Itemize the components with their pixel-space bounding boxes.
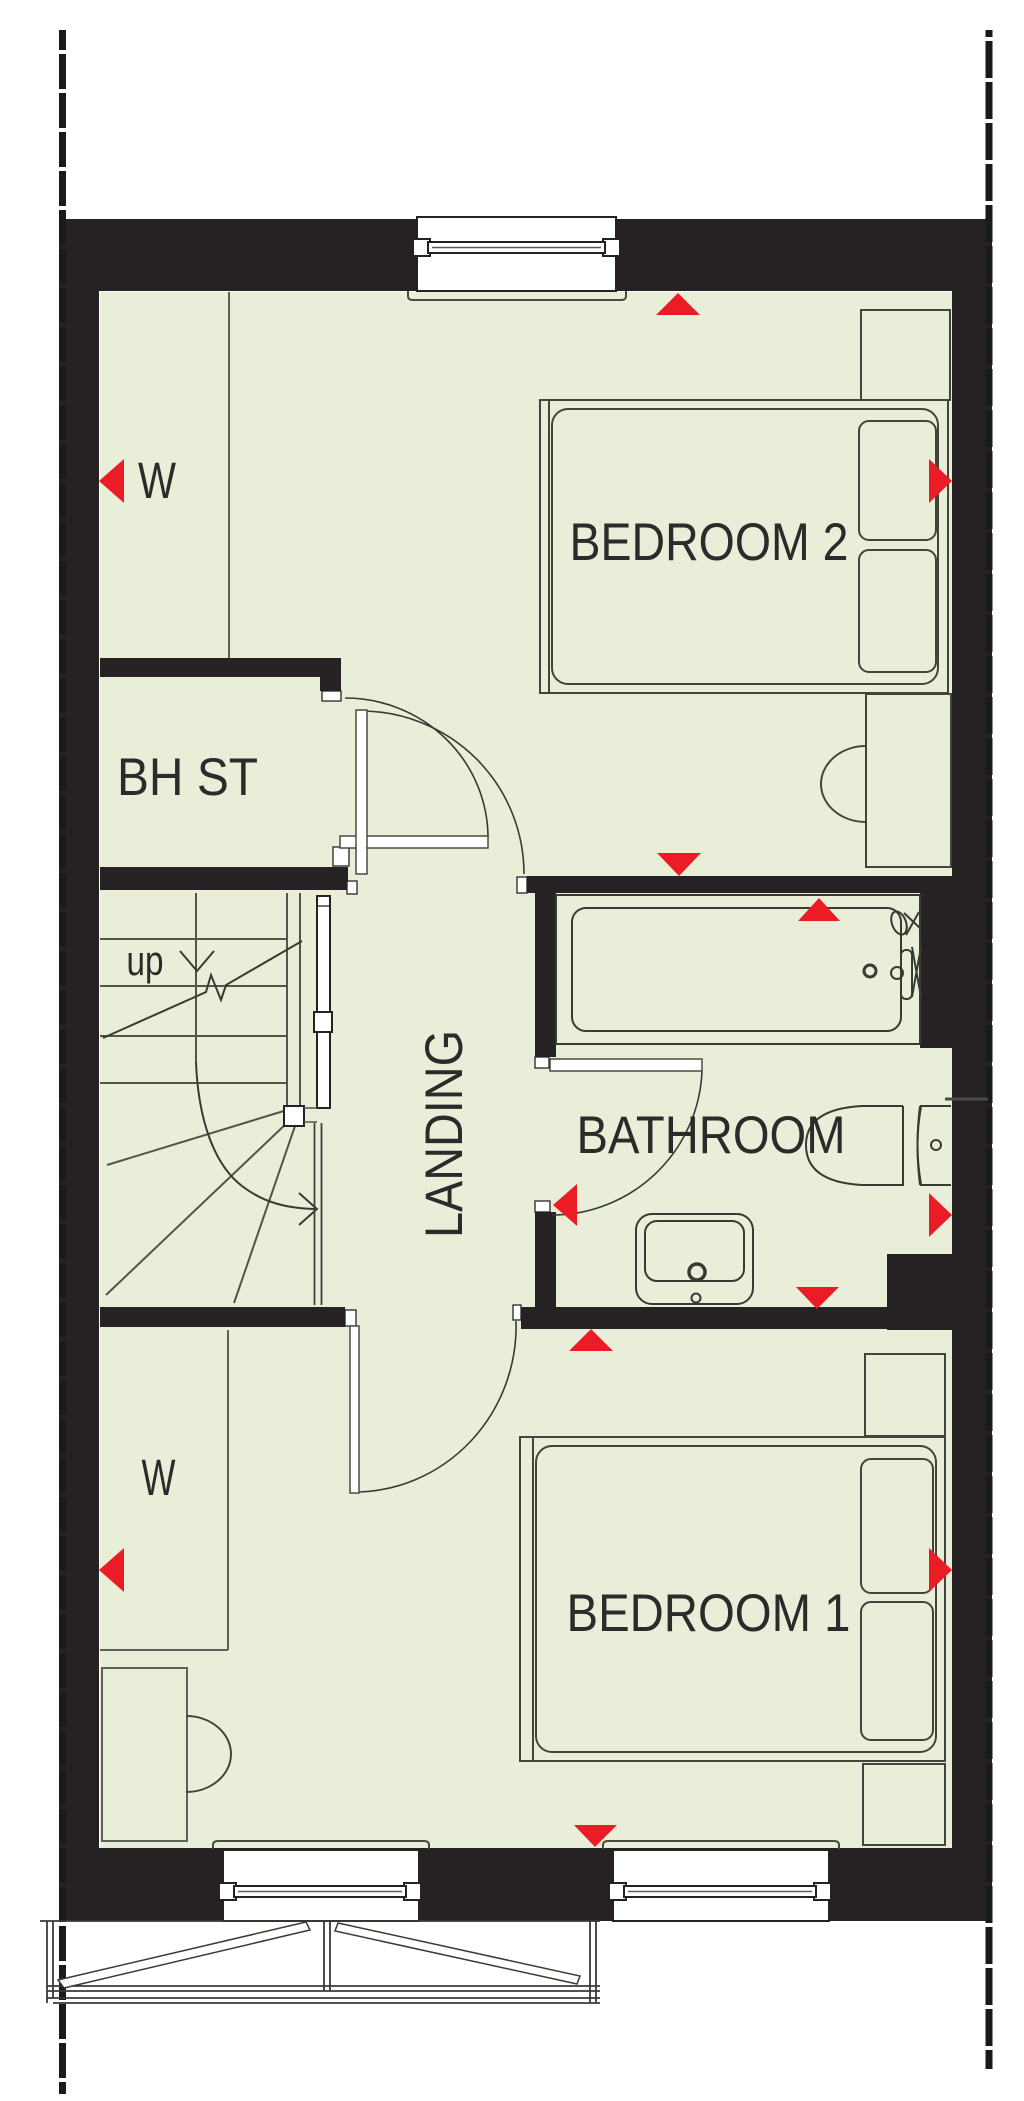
svg-text:W: W — [138, 452, 176, 509]
svg-text:LANDING: LANDING — [415, 1030, 474, 1238]
svg-text:BEDROOM 2: BEDROOM 2 — [570, 513, 849, 572]
svg-text:BATHROOM: BATHROOM — [577, 1106, 846, 1165]
svg-text:BH ST: BH ST — [117, 748, 258, 807]
svg-text:W: W — [142, 1449, 176, 1506]
svg-text:BEDROOM 1: BEDROOM 1 — [567, 1584, 851, 1643]
svg-text:up: up — [127, 937, 164, 984]
